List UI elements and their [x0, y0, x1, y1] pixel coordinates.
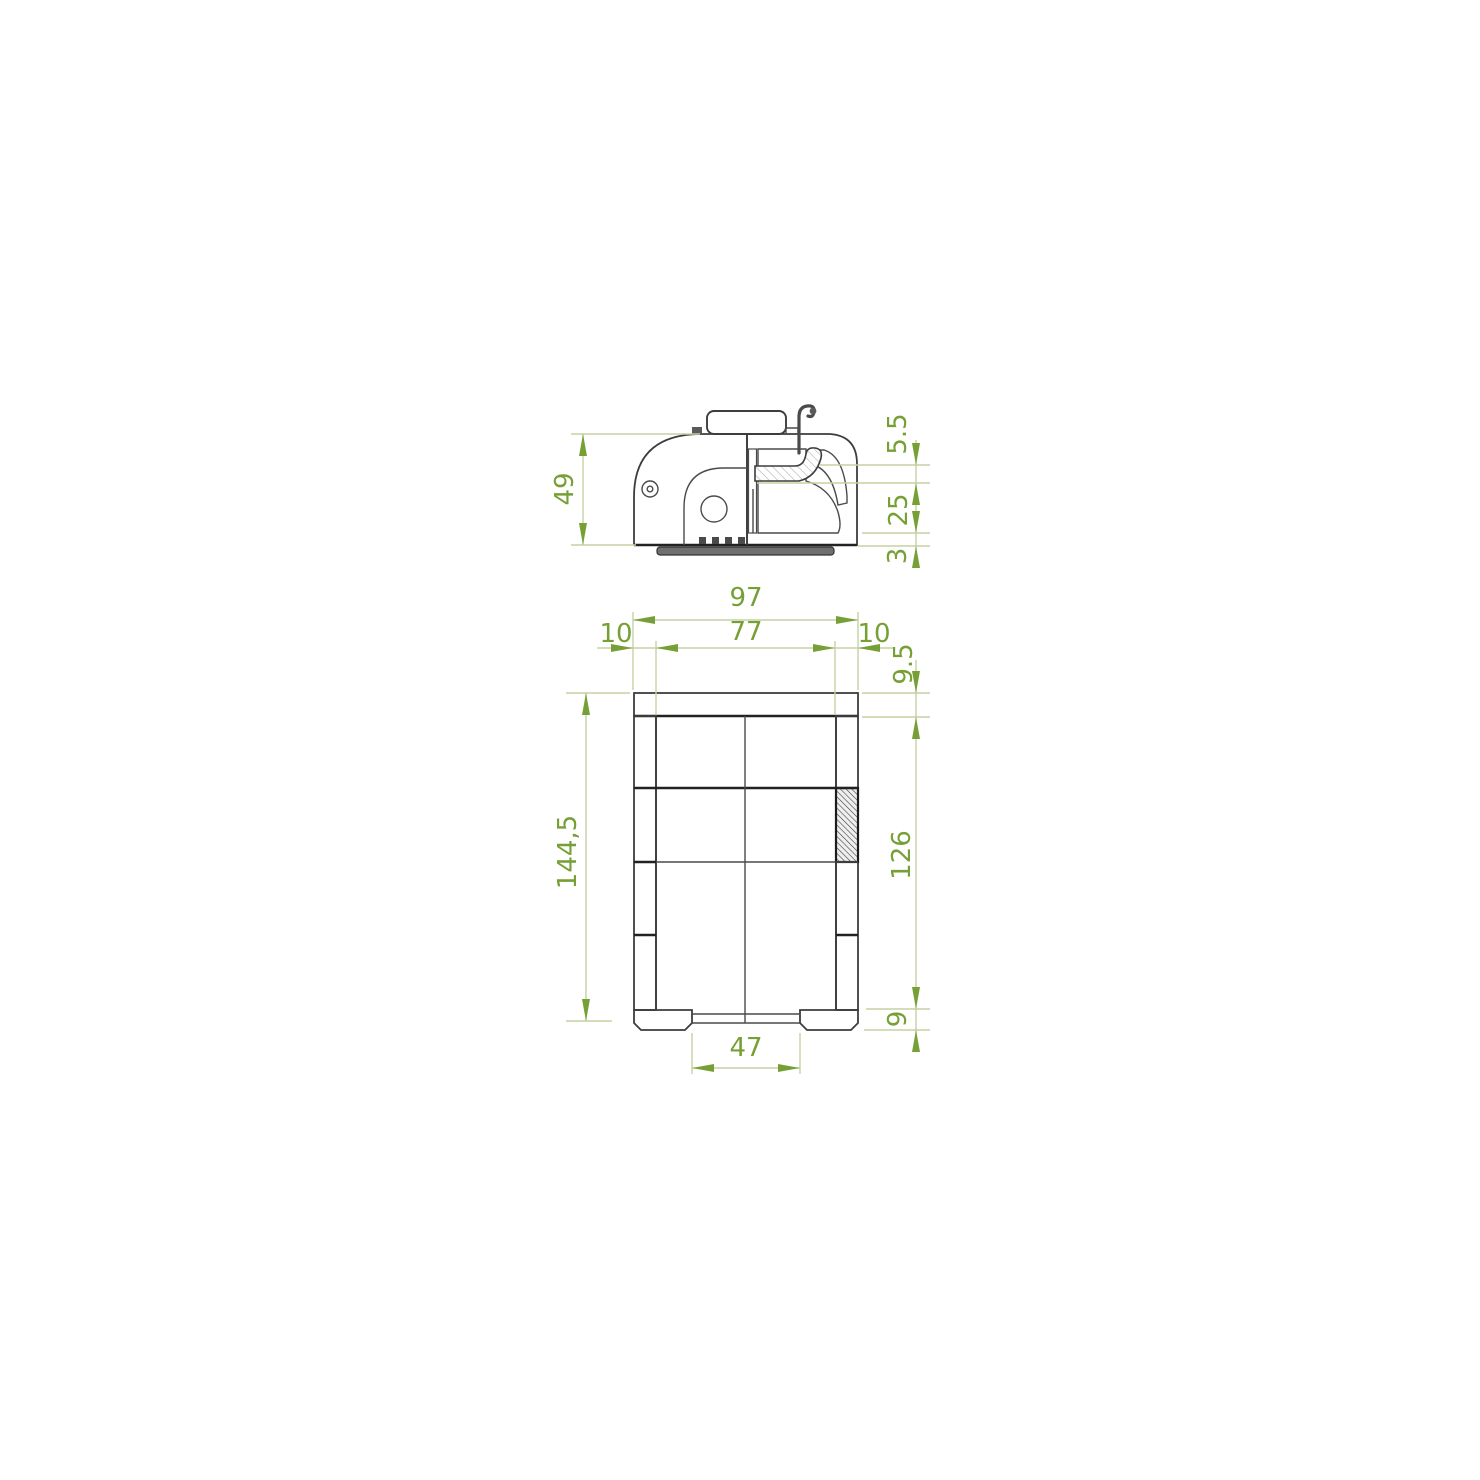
- dim-foot-height-label: 9: [883, 1011, 913, 1028]
- wire-hook-tip: [810, 408, 817, 415]
- dim-catch-depth-label: 25: [884, 493, 914, 526]
- dim-overall-width-label: 97: [729, 583, 762, 613]
- button-left-tab: [692, 427, 702, 434]
- dim-top-wall-label: 9.5: [889, 643, 919, 684]
- push-button: [707, 411, 786, 434]
- side-section-view: [634, 406, 857, 555]
- screw-hole: [701, 496, 727, 522]
- rivet-hole-inner: [647, 486, 653, 492]
- arrowhead: [912, 1030, 920, 1052]
- technical-drawing-canvas: 49 5.5 25 3 97 77 10 10: [0, 0, 1480, 1480]
- bottom-teeth: [699, 537, 745, 544]
- body-inner-contour: [684, 468, 747, 545]
- dim-overall-height-label: 144,5: [553, 815, 583, 889]
- dim-wall-right-label: 10: [857, 619, 890, 649]
- right-foot: [800, 1010, 858, 1030]
- dim-wall-left-label: 10: [599, 619, 632, 649]
- dim-side-height-label: 49: [550, 472, 580, 505]
- dim-inner-height-label: 126: [887, 830, 917, 880]
- arrowhead: [912, 717, 920, 739]
- arrowhead: [836, 616, 858, 624]
- front-section-view: [634, 693, 858, 1030]
- rivet-hole-outer: [642, 481, 658, 497]
- top-wall: [634, 693, 858, 716]
- arrowhead: [582, 693, 590, 715]
- arrowhead: [582, 999, 590, 1021]
- right-wall-insert-block: [836, 788, 858, 862]
- body-outline: [634, 434, 747, 545]
- arrowhead: [912, 443, 920, 465]
- dim-inner-width-label: 77: [729, 617, 762, 647]
- arrowhead: [912, 987, 920, 1009]
- arrowhead: [579, 523, 587, 545]
- arrowhead: [912, 546, 920, 568]
- left-foot: [634, 1010, 692, 1030]
- arrowhead: [692, 1064, 714, 1072]
- dimensions: 49 5.5 25 3 97 77 10 10: [550, 413, 930, 1074]
- drawing-svg: 49 5.5 25 3 97 77 10 10: [0, 0, 1480, 1480]
- dim-base-plate-label: 3: [883, 548, 913, 565]
- arrowhead: [813, 644, 835, 652]
- arrowhead: [579, 434, 587, 456]
- arrowhead: [778, 1064, 800, 1072]
- base-plate: [657, 547, 834, 555]
- arrowhead: [656, 644, 678, 652]
- dim-opening-width-label: 47: [729, 1033, 762, 1063]
- arrowhead: [633, 616, 655, 624]
- dim-top-gap-label: 5.5: [883, 413, 913, 454]
